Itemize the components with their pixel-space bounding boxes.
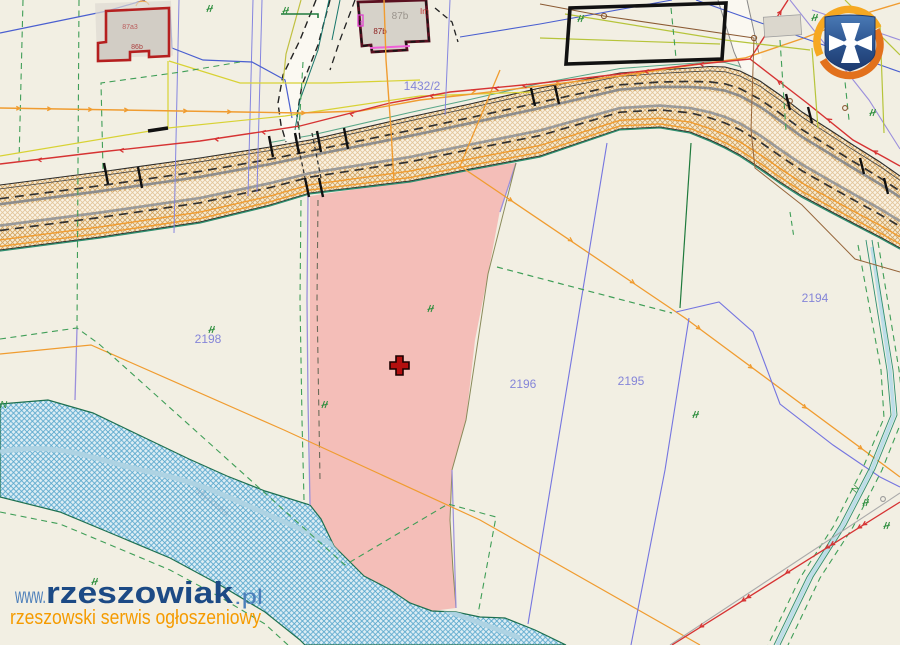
svg-text:Im: Im [420, 7, 429, 16]
svg-text:N: N [0, 400, 8, 411]
svg-text:rzeszowski serwis ogłoszeniowy: rzeszowski serwis ogłoszeniowy [10, 607, 261, 629]
svg-text:www.: www. [14, 585, 46, 608]
svg-text:87b: 87b [392, 11, 409, 22]
svg-text:87a3: 87a3 [122, 24, 138, 31]
svg-text:2195: 2195 [618, 374, 645, 388]
svg-text:2198: 2198 [195, 332, 222, 346]
svg-text:1432/2: 1432/2 [404, 79, 441, 93]
svg-text:2196: 2196 [510, 377, 537, 391]
svg-text:2194: 2194 [802, 291, 829, 305]
svg-text:.pl: .pl [234, 586, 263, 609]
svg-text:rzeszowiak: rzeszowiak [46, 575, 234, 610]
svg-text:86b: 86b [131, 44, 143, 51]
